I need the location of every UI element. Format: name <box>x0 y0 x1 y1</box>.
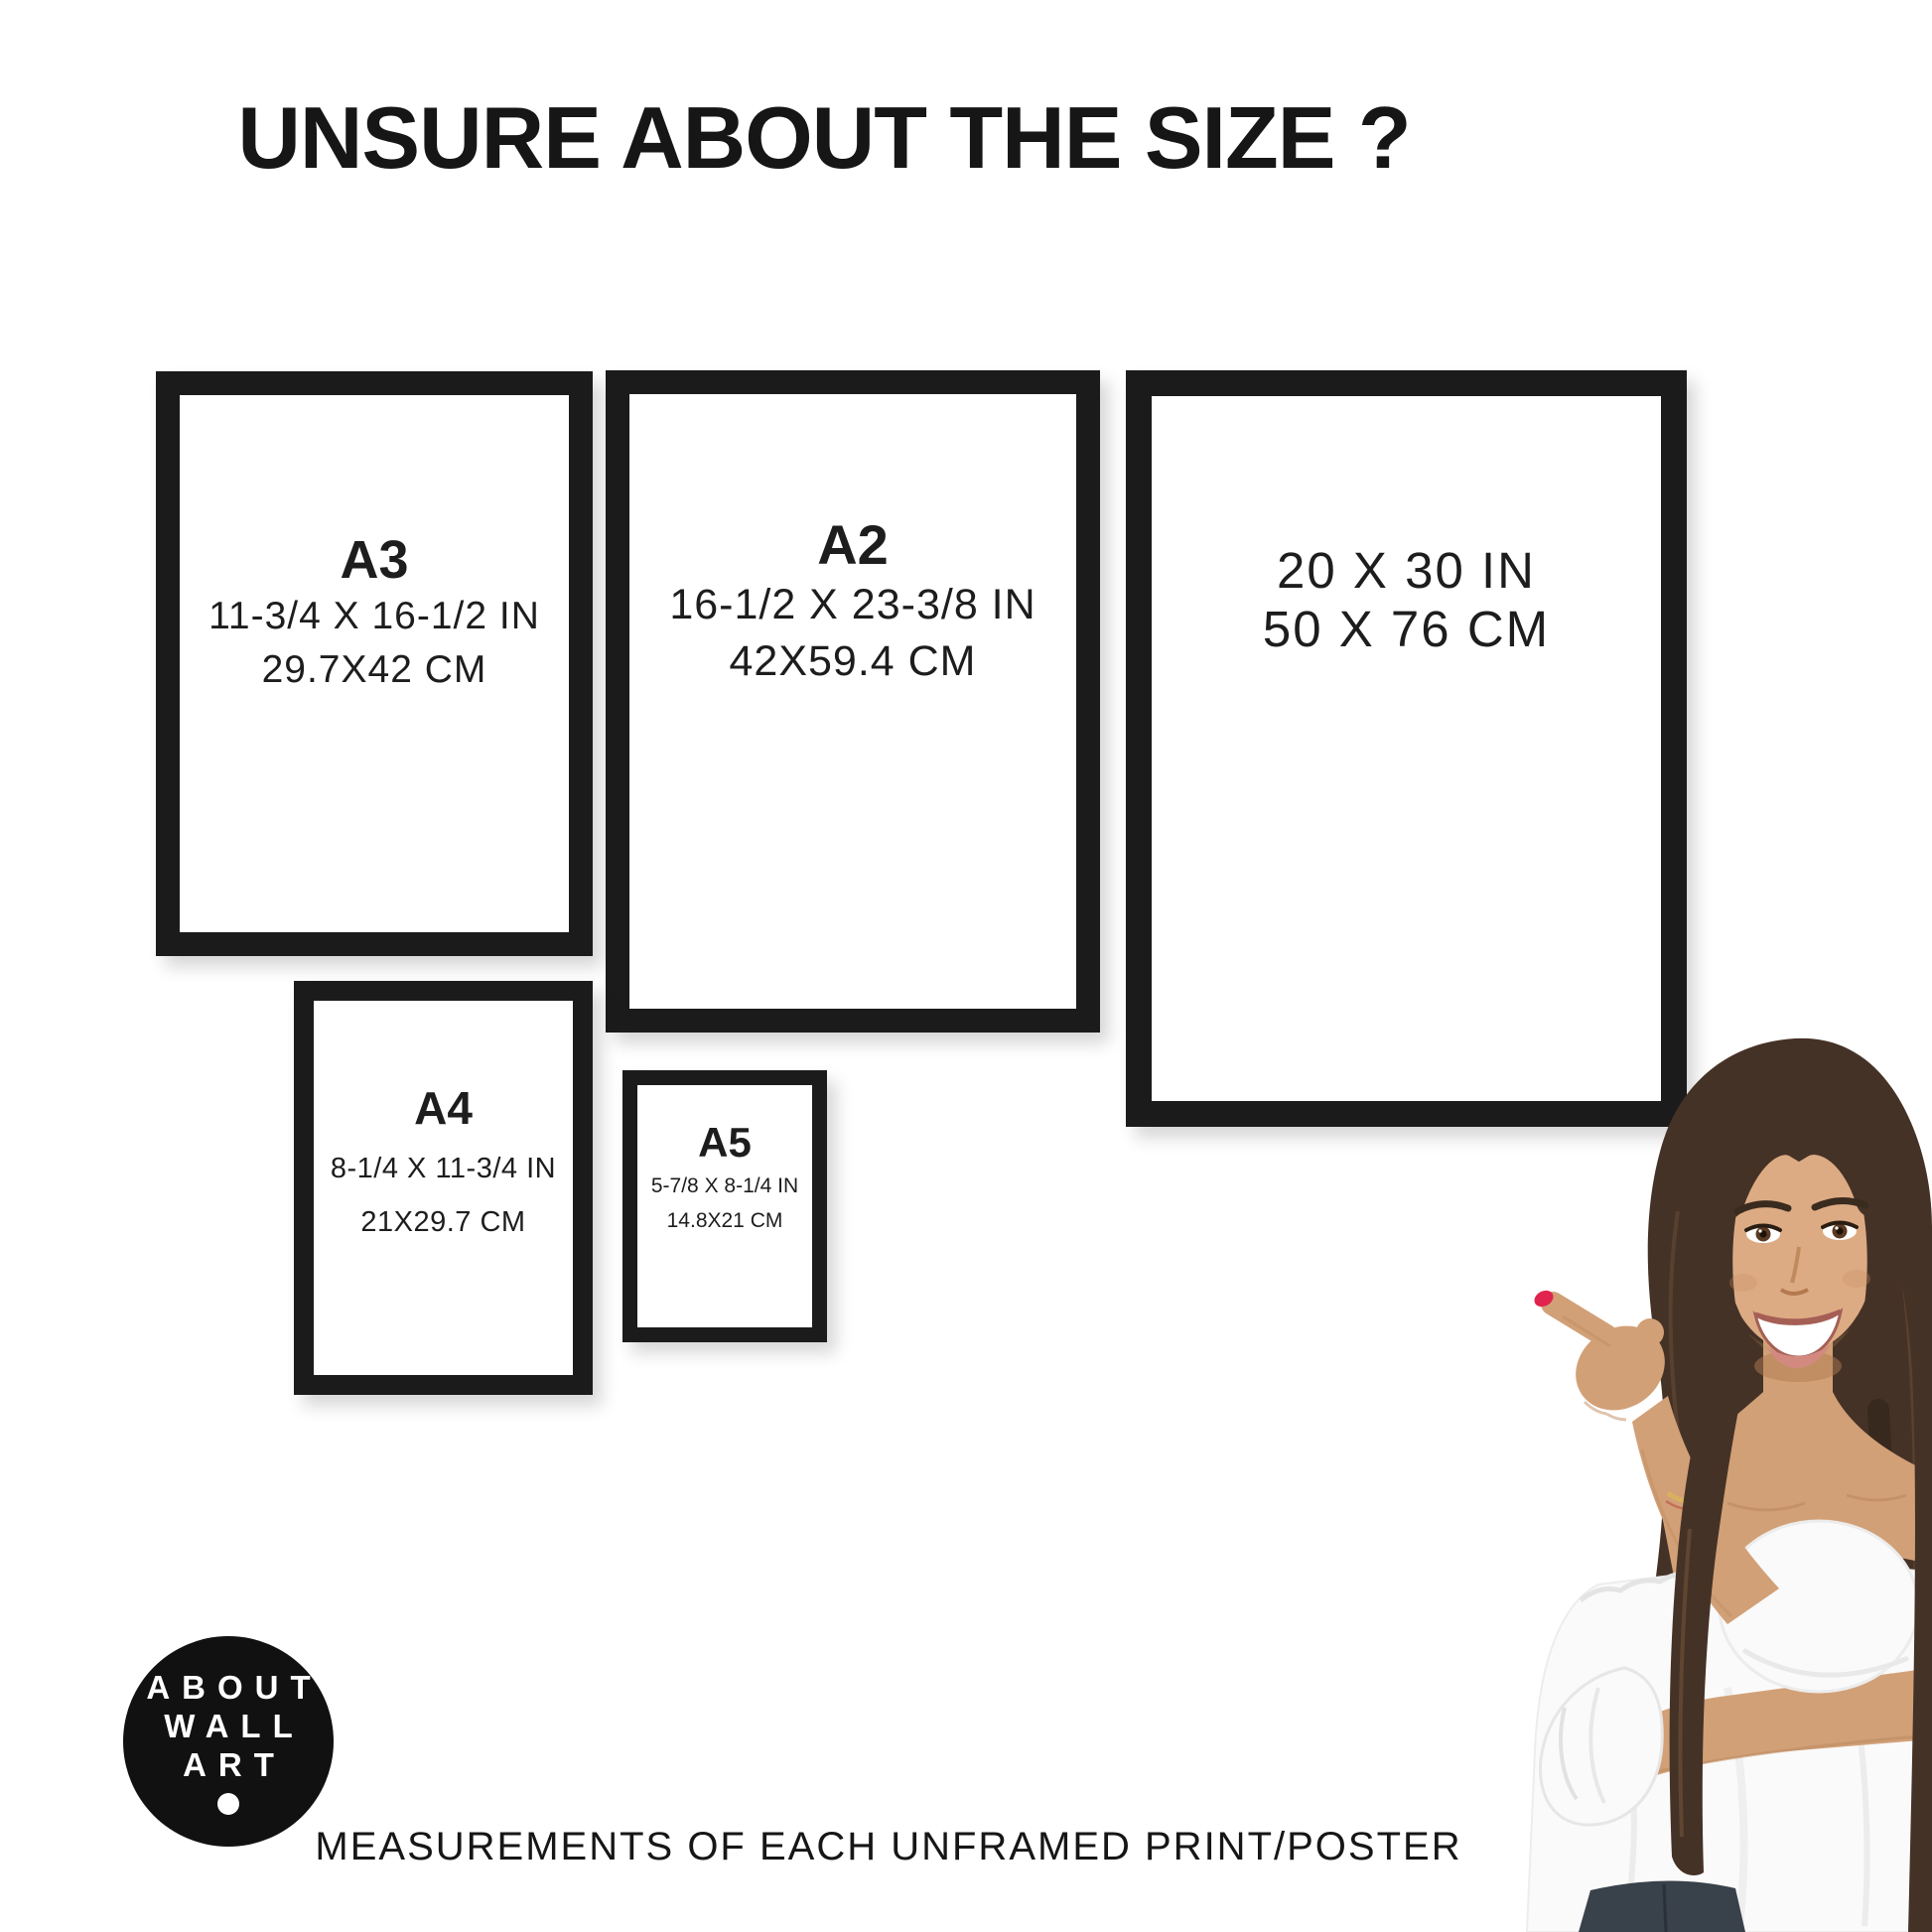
frame-a2-size-inches: 16-1/2 X 23-3/8 IN <box>669 577 1035 633</box>
frame-a4-size-inches: 8-1/4 X 11-3/4 IN <box>331 1150 556 1187</box>
frame-a3-size-cm: 29.7X42 CM <box>262 643 487 697</box>
frame-a5-size-cm: 14.8X21 CM <box>667 1206 783 1235</box>
frame-20x30-size-inches: 20 X 30 IN <box>1277 541 1536 600</box>
frame-a3-size-inches: 11-3/4 X 16-1/2 IN <box>208 590 540 643</box>
frame-a3-label: A3 <box>340 530 408 590</box>
jeans <box>1579 1880 1745 1932</box>
frame-a2-label: A2 <box>817 513 889 577</box>
brand-logo-dot-icon <box>217 1793 239 1815</box>
frame-a5: A5 5-7/8 X 8-1/4 IN 14.8X21 CM <box>622 1070 827 1342</box>
frame-a5-label: A5 <box>698 1119 752 1167</box>
woman-pointing-photo <box>1430 1033 1932 1932</box>
frame-20x30: 20 X 30 IN 50 X 76 CM <box>1126 370 1687 1127</box>
pointing-finger <box>1553 1304 1606 1336</box>
frame-a4-label: A4 <box>414 1082 473 1134</box>
frame-a2-size-cm: 42X59.4 CM <box>729 633 976 690</box>
brand-logo-line-1: ABOUT <box>134 1668 322 1707</box>
size-guide-poster: UNSURE ABOUT THE SIZE ? A3 11-3/4 X 16-1… <box>0 0 1932 1932</box>
frame-20x30-size-cm: 50 X 76 CM <box>1263 600 1550 658</box>
frame-a5-size-inches: 5-7/8 X 8-1/4 IN <box>651 1172 798 1200</box>
brand-logo-line-2: WALL <box>152 1707 304 1745</box>
frame-a4: A4 8-1/4 X 11-3/4 IN 21X29.7 CM <box>294 981 593 1395</box>
frame-a4-size-cm: 21X29.7 CM <box>360 1203 525 1241</box>
frame-a2: A2 16-1/2 X 23-3/8 IN 42X59.4 CM <box>606 370 1100 1033</box>
page-title: UNSURE ABOUT THE SIZE ? <box>0 87 1648 189</box>
brand-logo: ABOUT WALL ART <box>123 1636 334 1847</box>
frame-a3: A3 11-3/4 X 16-1/2 IN 29.7X42 CM <box>156 371 593 956</box>
brand-logo-line-3: ART <box>171 1745 286 1784</box>
